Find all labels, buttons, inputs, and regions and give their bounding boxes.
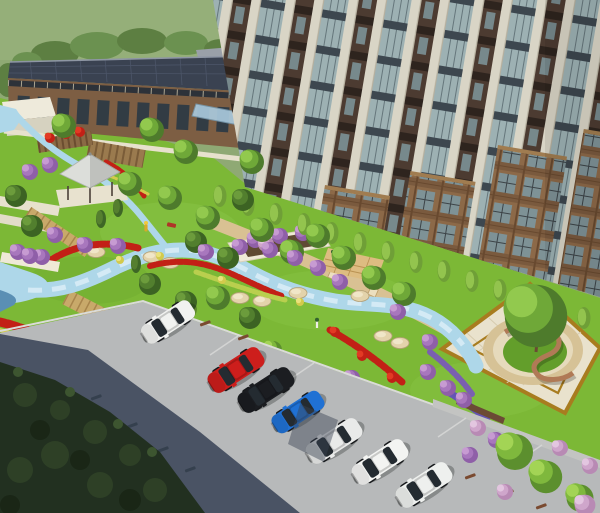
tower-edge-shade: [545, 0, 600, 320]
rendering-canvas: Aerial 3D architectural rendering of a r…: [0, 0, 600, 513]
rendering-stage: Aerial 3D architectural rendering of a r…: [0, 0, 600, 513]
person-figure: [144, 221, 148, 232]
pavilion-finial: [88, 152, 91, 155]
